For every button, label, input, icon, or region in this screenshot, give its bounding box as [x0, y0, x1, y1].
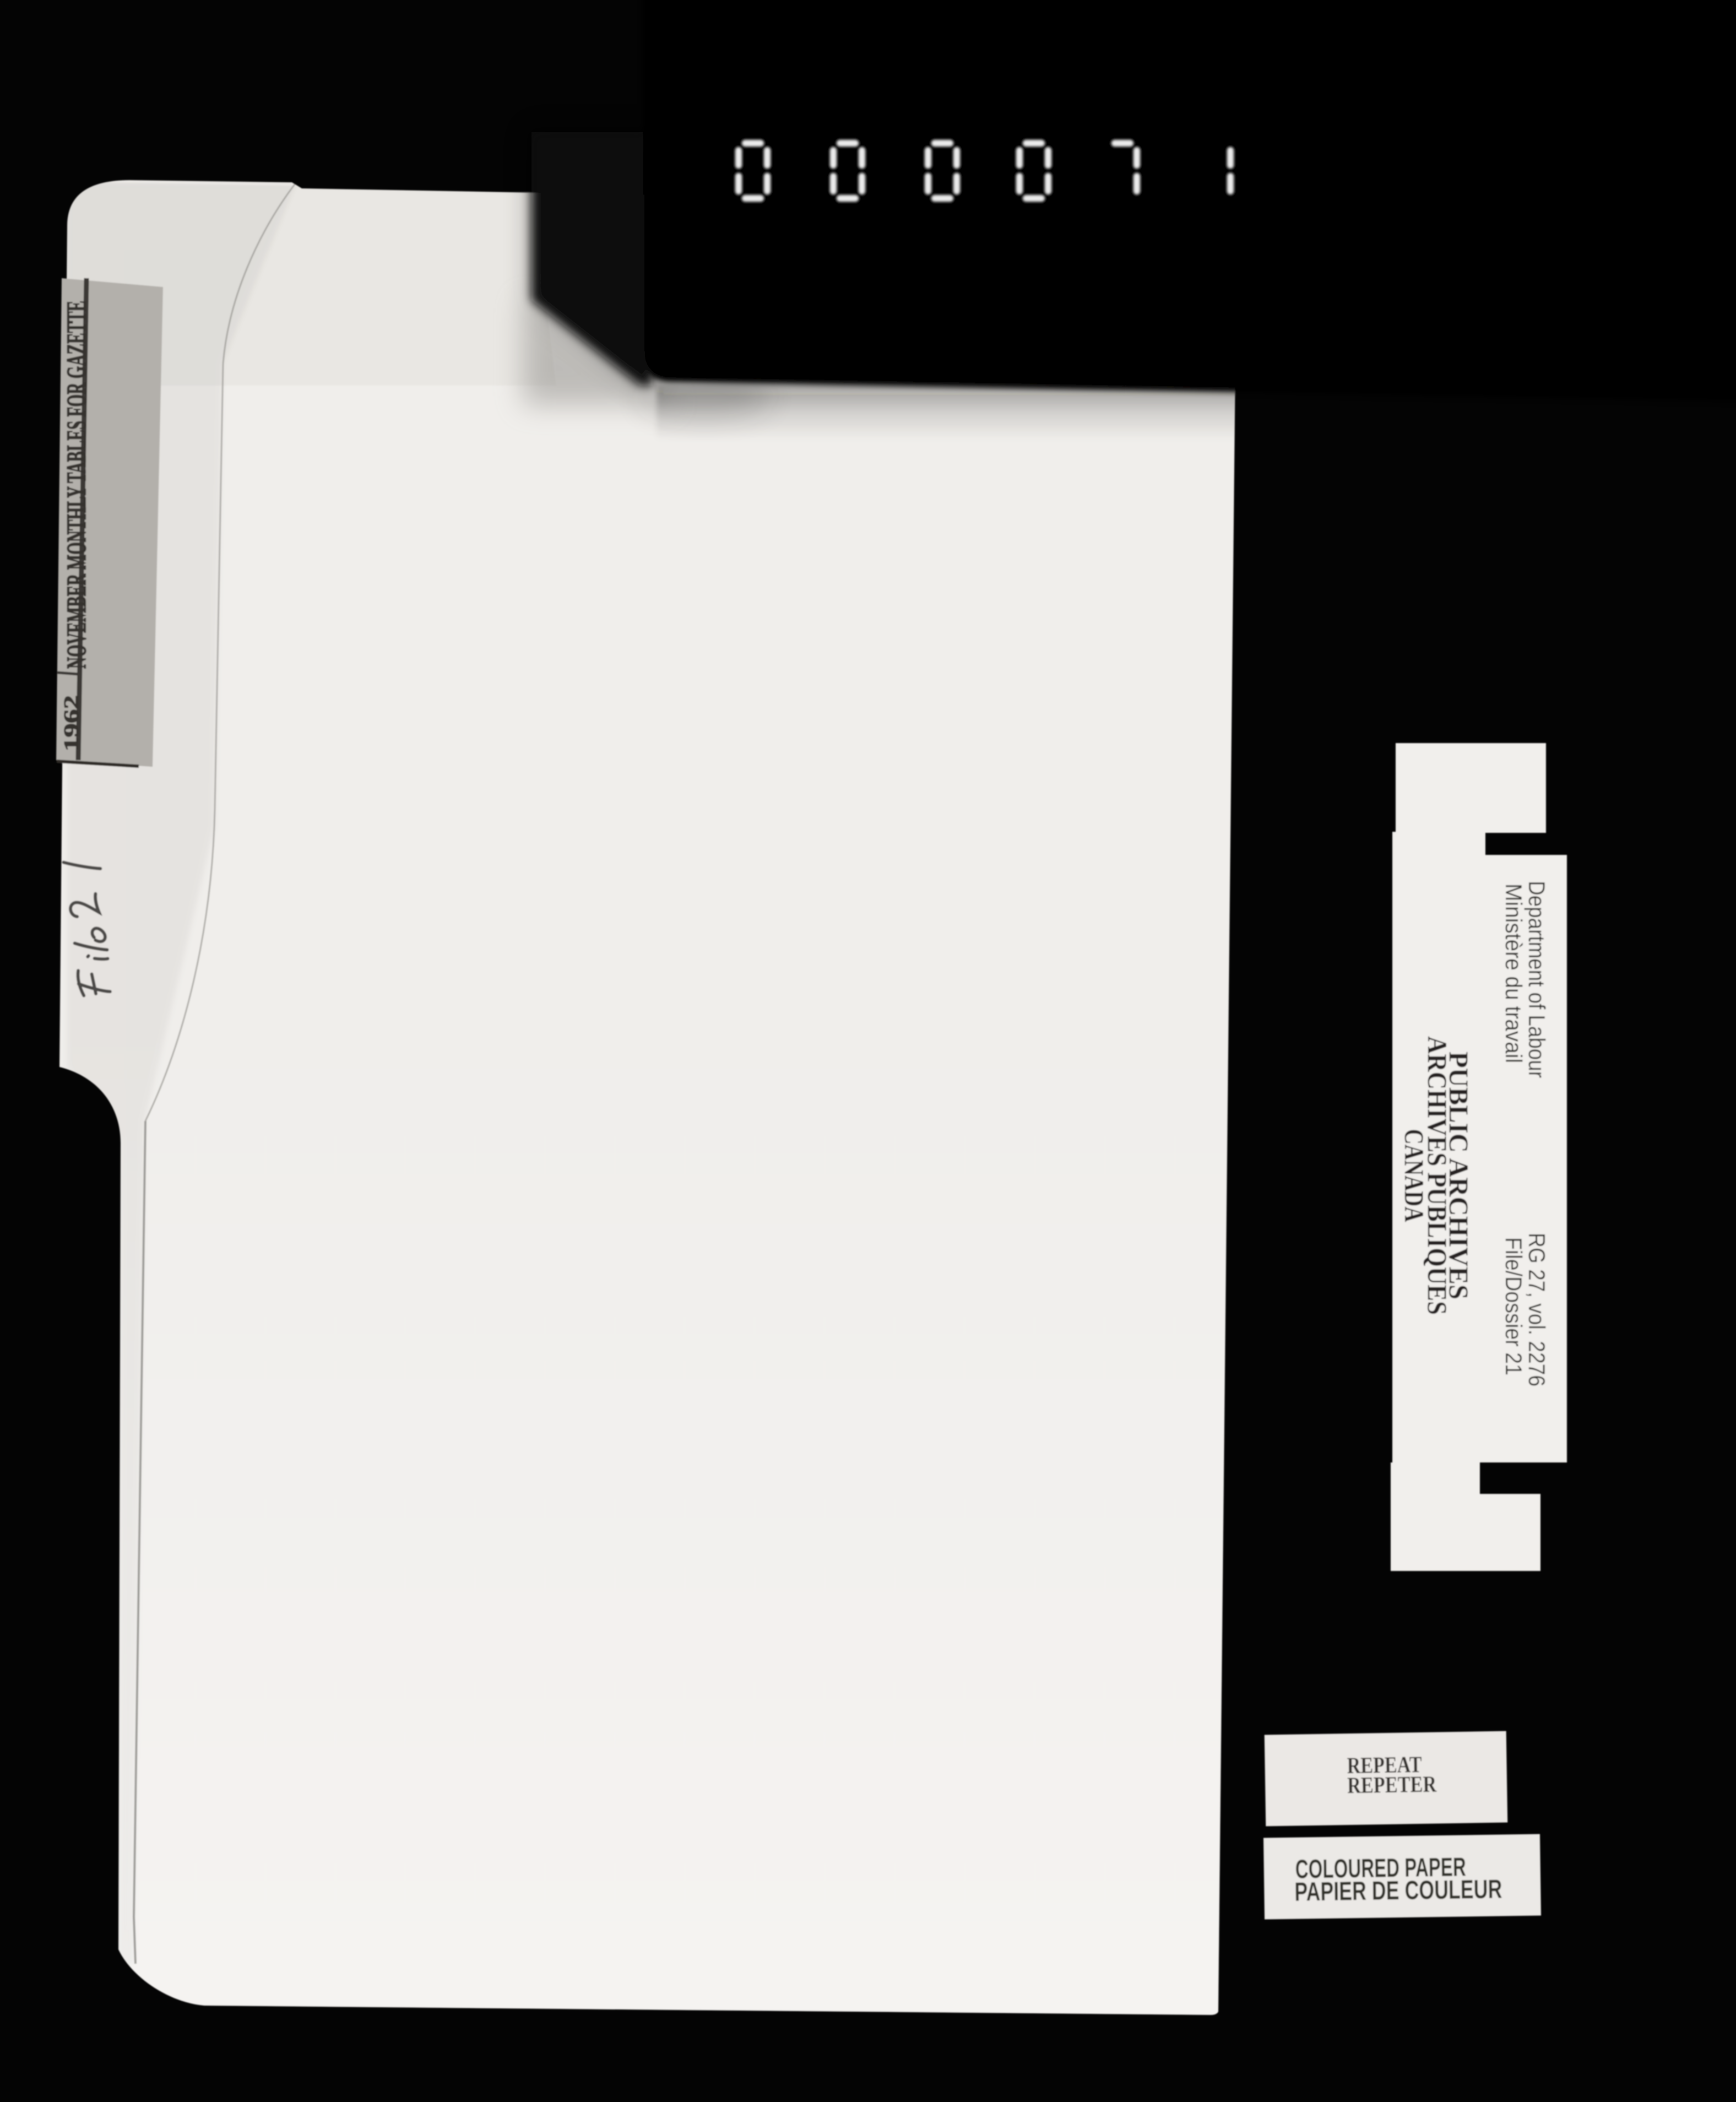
svg-text:File/Dossier 21: File/Dossier 21: [1501, 1237, 1527, 1375]
svg-text:Department of Labour: Department of Labour: [1524, 881, 1550, 1078]
svg-text:REPETER: REPETER: [1347, 1772, 1437, 1799]
svg-text:1962: 1962: [60, 695, 83, 751]
svg-text:Ministère du travail: Ministère du travail: [1501, 884, 1527, 1063]
svg-text:PAPIER DE COULEUR: PAPIER DE COULEUR: [1294, 1875, 1502, 1906]
svg-text:CANADA: CANADA: [1399, 1129, 1430, 1222]
svg-text:RG 27, vol. 2276: RG 27, vol. 2276: [1524, 1233, 1550, 1386]
svg-text:NOVEMBER MONTHLY TABLES FOR GA: NOVEMBER MONTHLY TABLES FOR GAZETTE: [61, 301, 91, 669]
